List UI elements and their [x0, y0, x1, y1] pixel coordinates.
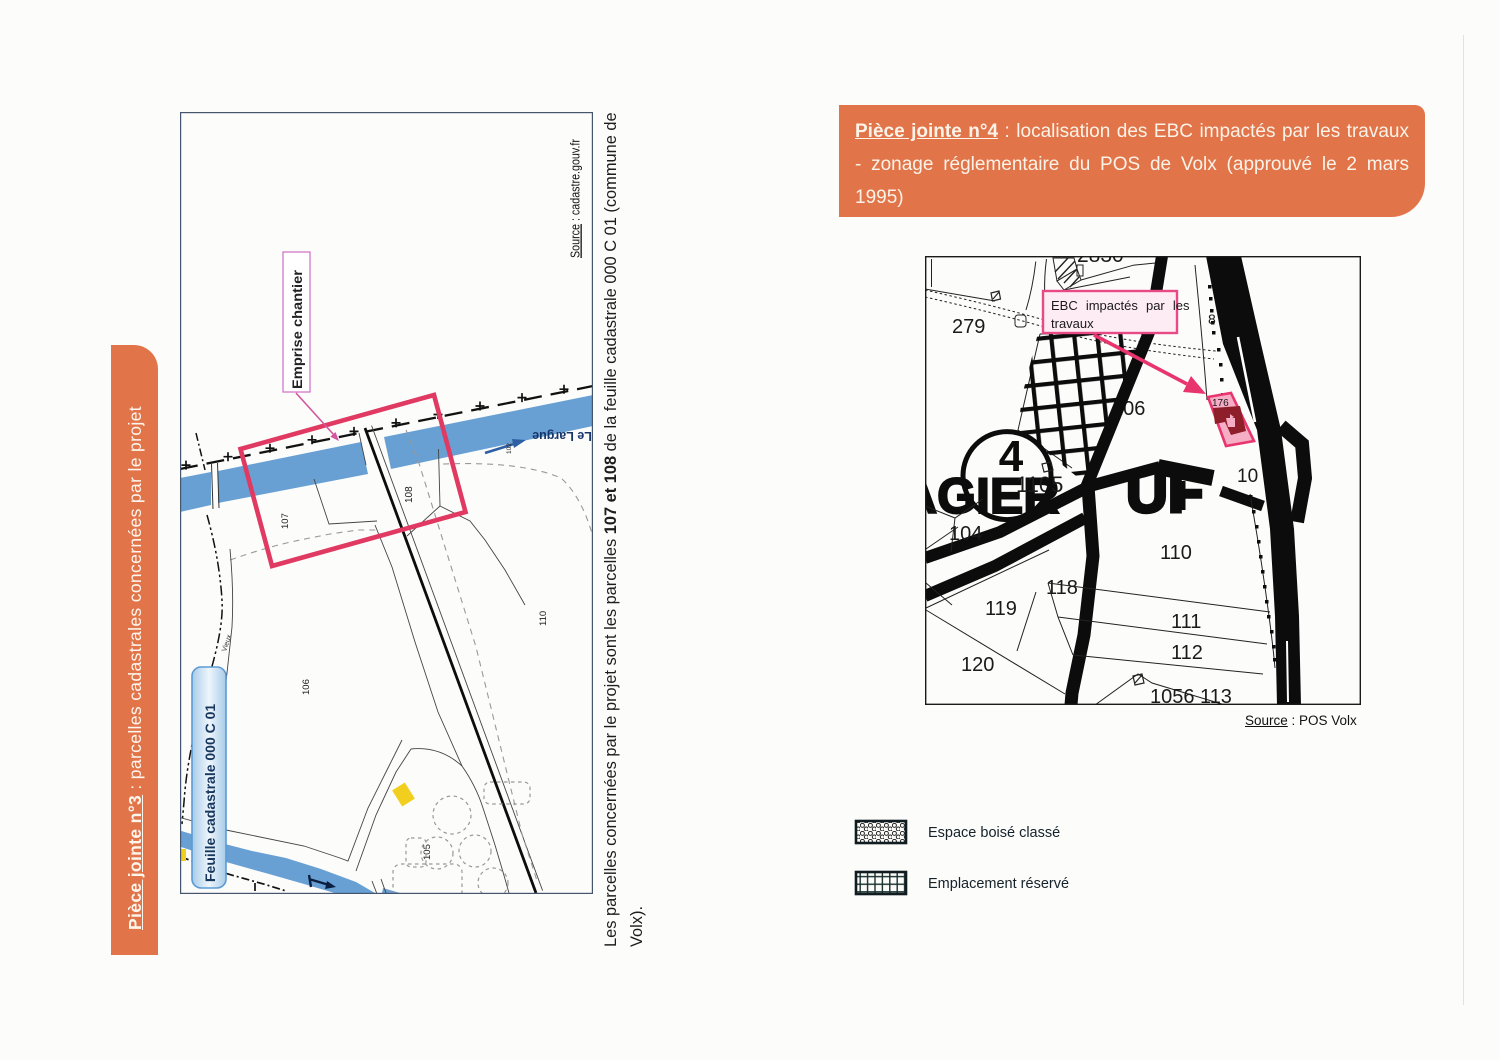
svg-text:118: 118 — [1046, 577, 1078, 599]
svg-text:279: 279 — [952, 316, 985, 338]
svg-text:Vieux: Vieux — [221, 633, 233, 652]
svg-text:102: 102 — [506, 443, 513, 454]
svg-text:110: 110 — [538, 611, 549, 626]
svg-text:104: 104 — [949, 523, 982, 545]
svg-text:108: 108 — [404, 486, 415, 503]
svg-text:Emplacement réservé: Emplacement réservé — [928, 876, 1069, 892]
svg-text:4: 4 — [999, 432, 1024, 481]
svg-text:Feuille cadastrale 000 C 01: Feuille cadastrale 000 C 01 — [202, 704, 218, 882]
svg-text:10: 10 — [1237, 466, 1258, 487]
svg-text:105: 105 — [422, 844, 433, 860]
svg-text:1056 113: 1056 113 — [1150, 686, 1232, 705]
svg-text:176: 176 — [1212, 398, 1229, 409]
svg-text:120: 120 — [961, 654, 994, 676]
svg-text:travaux: travaux — [1051, 316, 1094, 331]
svg-text:8: 8 — [1208, 311, 1216, 327]
svg-text:107: 107 — [280, 513, 291, 529]
svg-text:Emprise chantier: Emprise chantier — [290, 269, 305, 389]
svg-text:111: 111 — [1171, 611, 1201, 633]
svg-text:106: 106 — [301, 679, 312, 695]
svg-text:112: 112 — [1171, 642, 1203, 664]
svg-text:Le Largue: Le Largue — [532, 429, 592, 443]
svg-text:2830: 2830 — [1077, 256, 1124, 267]
svg-text:110: 110 — [1160, 542, 1192, 564]
svg-text:Espace boisé classé: Espace boisé classé — [928, 825, 1060, 841]
svg-text:UF: UF — [1126, 460, 1203, 525]
svg-text:EBC impactés par les: EBC impactés par les — [1051, 298, 1190, 313]
svg-text:119: 119 — [985, 598, 1017, 620]
svg-text:Source : cadastre.gouv.fr: Source : cadastre.gouv.fr — [568, 138, 583, 258]
